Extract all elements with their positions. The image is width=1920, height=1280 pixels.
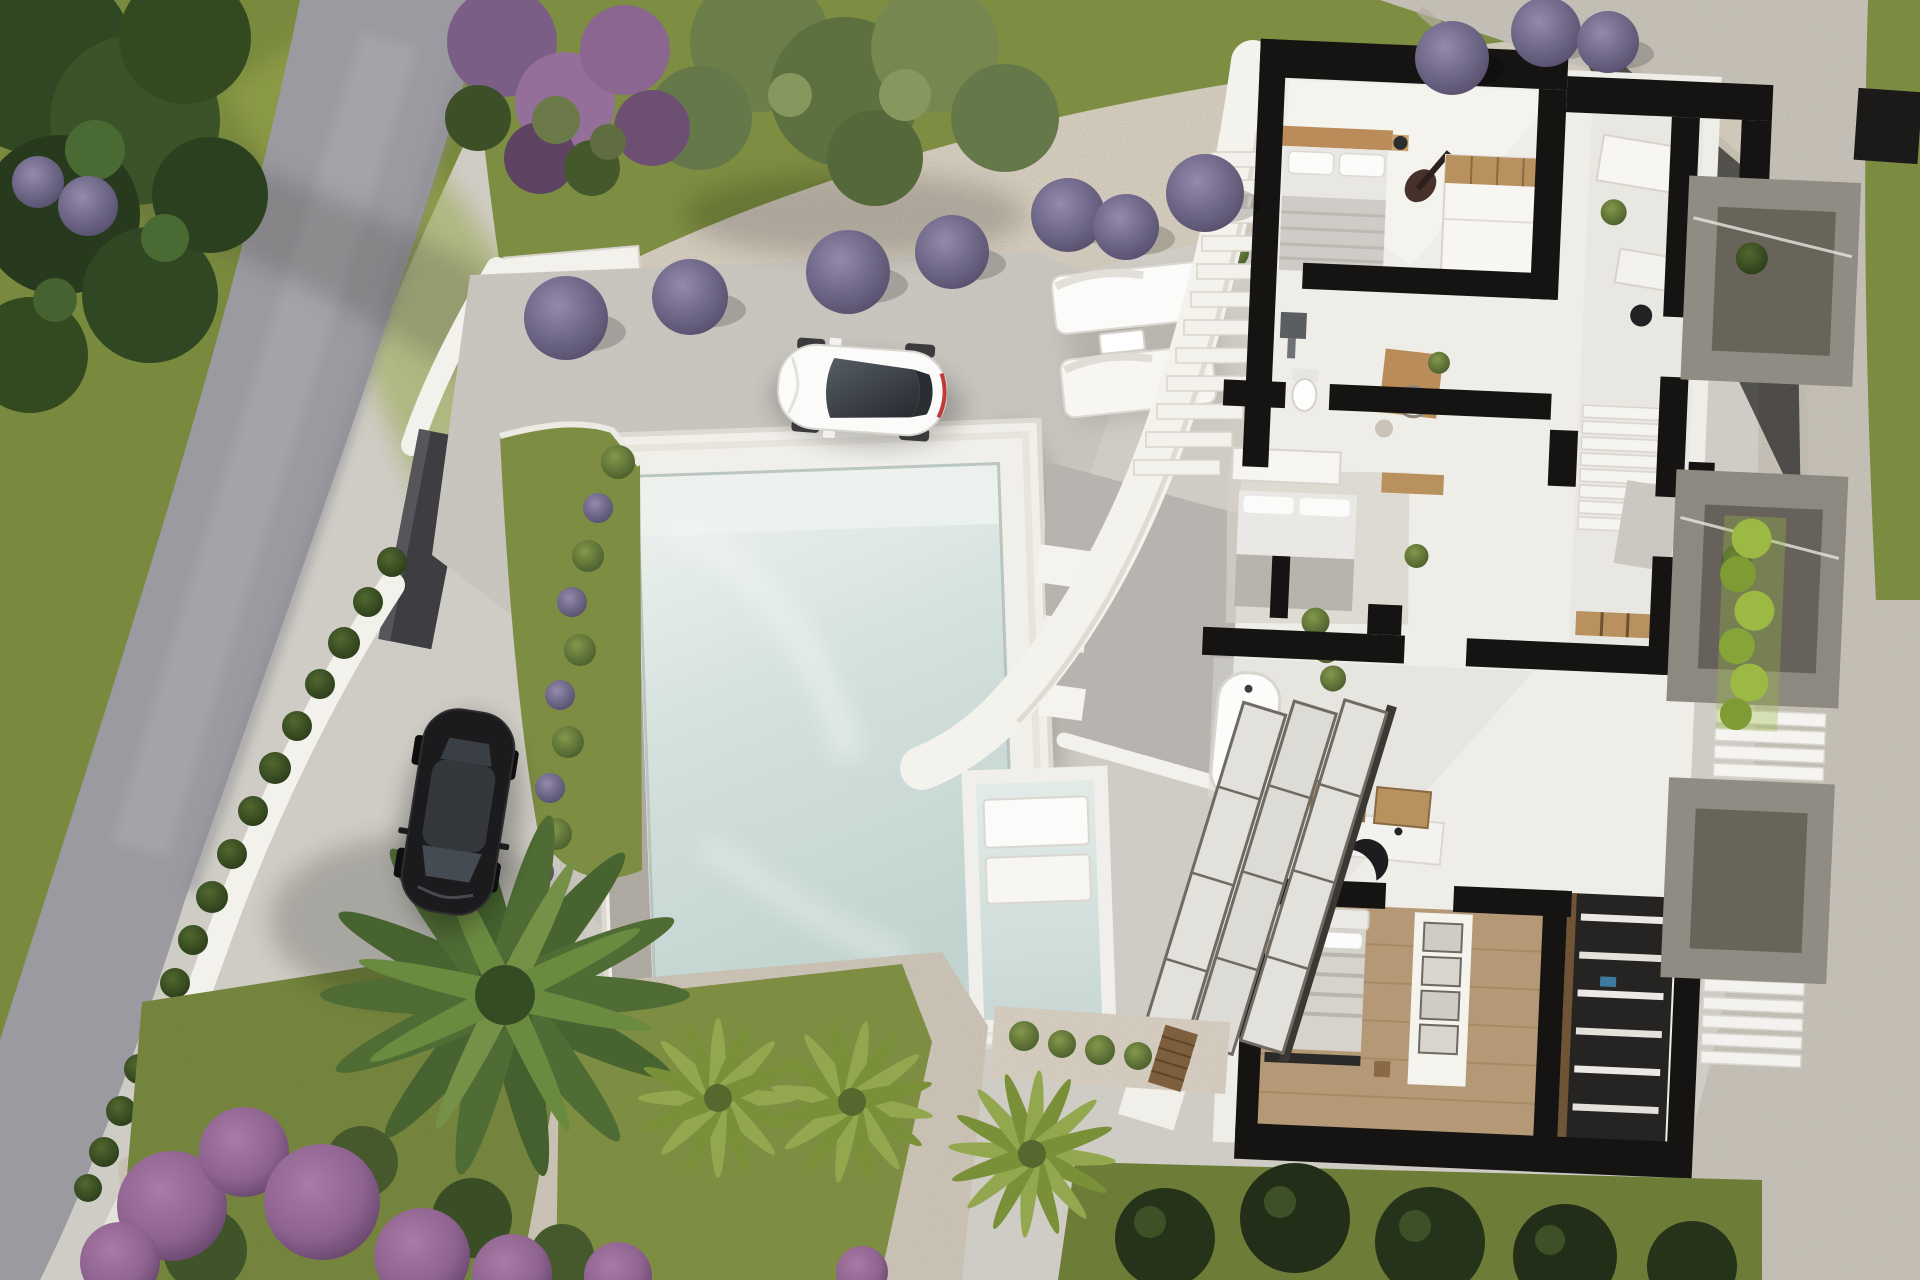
palm-crown-center [475, 965, 535, 1025]
art-frame [1420, 991, 1459, 1021]
shrub-green [552, 726, 584, 758]
shower-head [1280, 312, 1307, 339]
tree-canopy-light [33, 278, 77, 322]
wardrobe-item-blue [1600, 976, 1616, 987]
tree-canopy-light [65, 120, 125, 180]
dark-shrub-highlight [1535, 1225, 1565, 1255]
walkin-wardrobe [1556, 893, 1676, 1175]
hedge-bush [328, 627, 360, 659]
toilet-bowl [1292, 378, 1317, 411]
side-table [1099, 330, 1145, 354]
louver-slat [1157, 404, 1243, 419]
planter-vertical-green [1713, 515, 1786, 732]
louver-slat [1146, 432, 1232, 447]
scene-svg [0, 0, 1920, 1280]
spa-sunbed-2 [985, 854, 1091, 904]
car-black-roof [420, 758, 497, 855]
spa-sunbed-1 [983, 796, 1089, 848]
shrub-purple [557, 587, 587, 617]
bedroom3-pillow [1321, 932, 1362, 949]
neighbor-wall-top-right [1854, 88, 1920, 164]
lavender-body [1031, 178, 1105, 252]
vanity-mirror-frame [1374, 787, 1431, 828]
lavender-body [1093, 194, 1159, 260]
art-frame [1423, 923, 1462, 953]
art-frame [1419, 1025, 1458, 1055]
hedge-bush [238, 796, 268, 826]
balcony-opening-1 [1712, 207, 1836, 356]
tree-olive-topcenter [648, 0, 1059, 257]
bed-shrub [1048, 1030, 1076, 1058]
shrub-green [564, 634, 596, 666]
bedroom3-side-table [1374, 1061, 1391, 1078]
hedge-bush [74, 1174, 102, 1202]
hedge-bush [217, 839, 247, 869]
dark-shrub-highlight [1399, 1210, 1431, 1242]
lavender-body [915, 215, 989, 289]
car-white-mirror [829, 338, 841, 346]
dark-shrub-highlight [1134, 1206, 1166, 1238]
olive-canopy-light [768, 73, 812, 117]
fan-center [704, 1084, 732, 1112]
olive-canopy [951, 64, 1059, 172]
hedge-bush [377, 547, 407, 577]
fan-center [1018, 1140, 1046, 1168]
olive-canopy-light [879, 69, 931, 121]
lavender-body [1166, 154, 1244, 232]
toilet [1291, 368, 1319, 411]
flower-shrub-purple [614, 90, 690, 166]
bed-shrub [1009, 1021, 1039, 1051]
lavender-body [652, 259, 728, 335]
wall-pier-2 [1548, 430, 1578, 487]
hedge-bush [259, 752, 291, 784]
lavender-body [806, 230, 890, 314]
lavender-body [1577, 11, 1639, 73]
shrub-purple [545, 680, 575, 710]
fan-palm-1 [638, 1018, 798, 1178]
hedge-bush [89, 1137, 119, 1167]
bed-pillow [1339, 153, 1385, 177]
hedge-bush [178, 925, 208, 955]
bougainvillea-purple [264, 1144, 380, 1260]
shrub-green [601, 445, 635, 479]
louver-slat [1134, 460, 1220, 475]
bedroom2-throw [1234, 554, 1354, 611]
art-frame [1422, 957, 1461, 987]
hedge-bush [160, 968, 190, 998]
shrub-purple [583, 493, 613, 523]
bed-pillow [1288, 151, 1334, 175]
bed-shrub [1124, 1042, 1152, 1070]
spa-pool [961, 766, 1116, 1033]
dark-shrub [1240, 1163, 1350, 1273]
car-white-mirror [823, 430, 835, 438]
lavender-body [1415, 21, 1489, 95]
bedroom2-shelf [1381, 472, 1444, 495]
bedroom2-pillow [1243, 495, 1294, 514]
lavender-bush-left [58, 176, 118, 236]
wall-pier-1 [1367, 604, 1402, 635]
gravel-bush-green [532, 96, 580, 144]
flower-shrub-purple [580, 5, 670, 95]
fan-center [838, 1088, 866, 1116]
tree-canopy-light [141, 214, 189, 262]
wall-h2-a [1223, 379, 1286, 408]
bed-shrub [1085, 1035, 1115, 1065]
shower-arm [1287, 338, 1296, 358]
hedge-bush [353, 587, 383, 617]
aerial-villa-render [0, 0, 1920, 1280]
flower-shrub-green [445, 85, 511, 151]
hedge-bush [196, 881, 228, 913]
stairs-bottom-right [1701, 979, 1805, 1067]
lavender-body [1511, 0, 1581, 67]
wall-h1-a [1250, 260, 1267, 287]
scene-root [0, 0, 1920, 1280]
shrub-green [572, 540, 604, 572]
olive-canopy [827, 110, 923, 206]
hedge-bush [282, 711, 312, 741]
lavender-bush-left [12, 156, 64, 208]
balcony-opening-3 [1690, 808, 1808, 953]
lavender-body [524, 276, 608, 360]
hedge-bush [106, 1096, 136, 1126]
wall-pier-3 [1270, 556, 1291, 619]
shrub-purple [535, 773, 565, 803]
hedge-bush [305, 669, 335, 699]
gravel-bush-green [590, 124, 626, 160]
bedroom2-pillow [1299, 498, 1350, 517]
dark-shrub-highlight [1264, 1186, 1296, 1218]
